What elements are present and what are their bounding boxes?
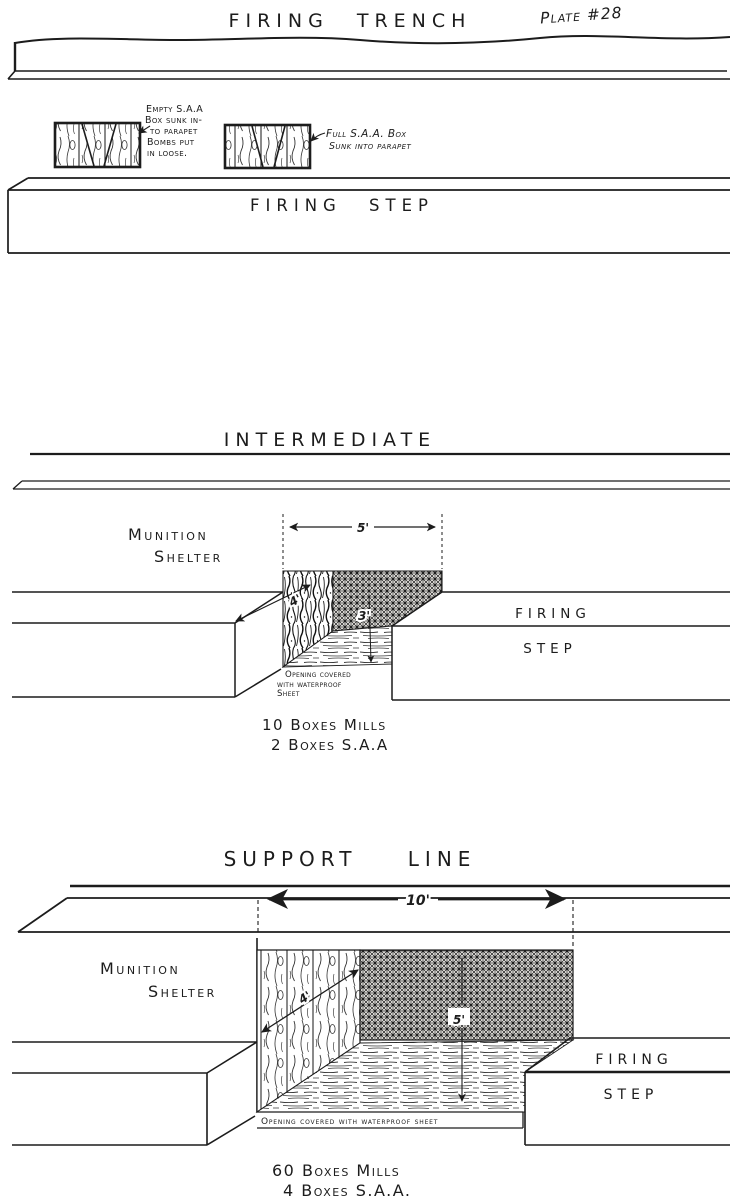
support-width-dimension: 10' [258, 893, 573, 947]
intermediate-opening-note: Opening covered with waterproof Sheet [277, 670, 351, 699]
empty-saa-box [55, 123, 140, 167]
support-line-title: SUPPORT LINE [224, 847, 477, 871]
intermediate-firing-step-block: FIRING STEP [392, 592, 730, 700]
intermediate-opening-note-line1: Opening covered [285, 670, 351, 680]
empty-box-note-line4: Bombs put [147, 137, 195, 148]
full-saa-box [225, 125, 310, 168]
intermediate-title: INTERMEDIATE [224, 429, 436, 451]
full-saa-box-outline [225, 125, 310, 168]
full-box-note-line1: Full S.A.A. Box [326, 128, 406, 140]
plate-page: FIRING TRENCH Plate #28 Empty S.A.A Box … [0, 0, 730, 1200]
section-intermediate: INTERMEDIATE Munition Shelter 5' 4' 3' F [12, 429, 730, 754]
parapet-top-lines [8, 71, 730, 79]
support-firing-step-block: FIRING STEP [525, 1038, 730, 1145]
section-firing-trench: FIRING TRENCH Plate #28 Empty S.A.A Box … [8, 4, 730, 253]
intermediate-step-label: STEP [523, 641, 577, 657]
intermediate-shelter-back-wall [333, 571, 442, 631]
intermediate-shelter-label-2: Shelter [154, 547, 223, 566]
support-firing-label: FIRING [595, 1052, 672, 1068]
firing-step-block: FIRING STEP [8, 178, 730, 253]
support-width-value: 10' [406, 893, 430, 909]
empty-box-note-line5: in loose. [147, 148, 187, 159]
support-opening-note: Opening covered with waterproof sheet [261, 1117, 438, 1127]
support-opening-band: Opening covered with waterproof sheet [257, 1112, 523, 1128]
empty-box-note-line1: Empty S.A.A [146, 104, 203, 115]
intermediate-opening-note-line3: Sheet [277, 689, 300, 699]
empty-box-note-line2: Box sunk in- [145, 115, 202, 126]
full-box-annotation: Full S.A.A. Box Sunk into parapet [311, 128, 411, 152]
intermediate-stock-line1: 10 Boxes Mills [262, 716, 387, 734]
support-shelter-back-wall [360, 950, 573, 1040]
intermediate-left-block [12, 592, 283, 697]
plate-number: Plate #28 [540, 4, 624, 28]
intermediate-shelter-label-1: Munition [128, 525, 208, 544]
section-support-line: SUPPORT LINE 10' Munition Shelter 4' 5' [12, 847, 730, 1200]
support-stock-line1: 60 Boxes Mills [272, 1161, 400, 1180]
full-box-note-line2: Sunk into parapet [329, 141, 411, 152]
intermediate-width-dimension: 5' [283, 514, 442, 569]
support-parapet-strip [18, 898, 730, 932]
intermediate-width-value: 5' [357, 521, 369, 535]
trench-shelter-plate-diagram: FIRING TRENCH Plate #28 Empty S.A.A Box … [0, 0, 730, 1200]
intermediate-stock-line2: 2 Boxes S.A.A [271, 736, 389, 754]
intermediate-shelter-recess: 4' 3' [236, 571, 442, 667]
intermediate-firing-label: FIRING [515, 606, 591, 622]
support-shelter-label-1: Munition [100, 959, 180, 978]
support-left-block [12, 1042, 257, 1145]
firing-step-outline [8, 178, 730, 253]
firing-trench-title: FIRING TRENCH [229, 10, 472, 32]
support-shelter-label-2: Shelter [148, 982, 217, 1001]
support-height-value: 5' [453, 1013, 465, 1027]
support-step-label: STEP [604, 1087, 659, 1103]
firing-step-label: FIRING STEP [250, 196, 434, 215]
support-stock-line2: 4 Boxes S.A.A. [283, 1181, 412, 1200]
empty-box-annotation: Empty S.A.A Box sunk in- to parapet Bomb… [139, 104, 203, 159]
intermediate-height-value: 3' [358, 609, 370, 623]
empty-box-note-line3: to parapet [149, 126, 198, 137]
intermediate-parapet-strip [13, 481, 730, 489]
full-box-note-arrow [311, 133, 325, 141]
empty-saa-box-outline [55, 123, 140, 167]
ground-surface-line [15, 36, 730, 43]
